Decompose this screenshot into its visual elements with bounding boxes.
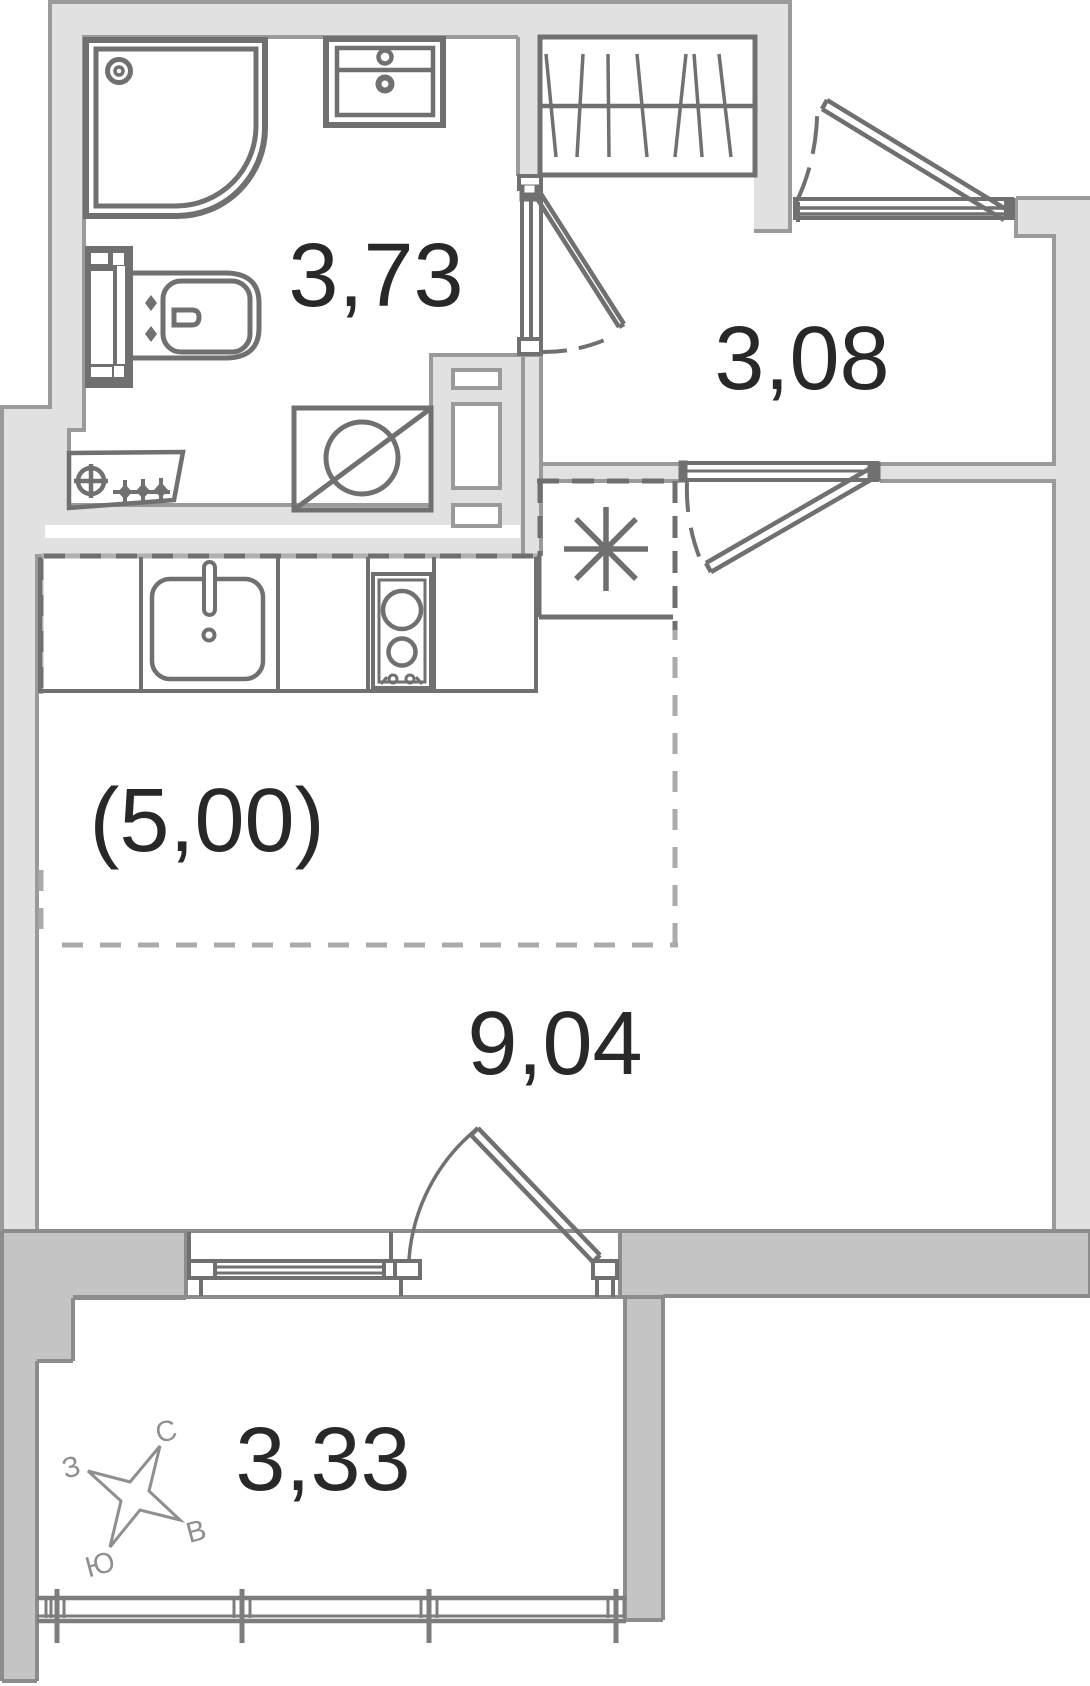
svg-text:Ю: Ю — [82, 1546, 119, 1584]
svg-text:3,33: 3,33 — [235, 1410, 410, 1510]
svg-text:В: В — [183, 1514, 210, 1550]
svg-text:3,08: 3,08 — [714, 309, 889, 409]
svg-text:З: З — [59, 1450, 84, 1485]
svg-text:9,04: 9,04 — [467, 994, 642, 1094]
svg-text:(5,00): (5,00) — [89, 771, 324, 871]
svg-text:3,73: 3,73 — [288, 226, 463, 326]
svg-text:С: С — [152, 1414, 181, 1450]
